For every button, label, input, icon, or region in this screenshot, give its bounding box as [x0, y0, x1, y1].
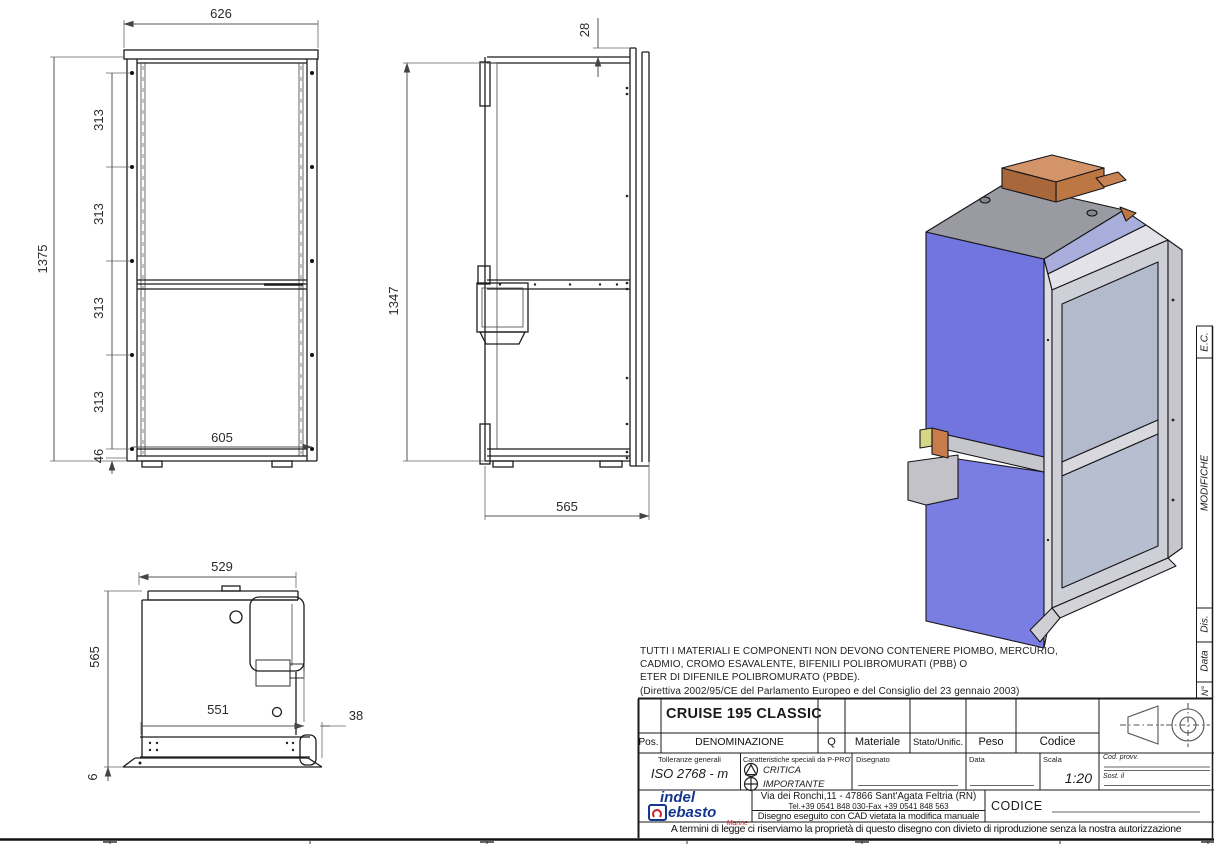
- dim-side-top: 28: [577, 23, 592, 37]
- dim-plan-depth: 565: [87, 646, 102, 668]
- col-denominazione: DENOMINAZIONE: [661, 736, 818, 748]
- cod-provv-label: Cod. provv.: [1103, 754, 1138, 761]
- sheet-bottom-edge: [0, 840, 1214, 844]
- material-note-line2: CADMIO, CROMO ESAVALENTE, BIFENILI POLIB…: [640, 658, 1058, 671]
- projection-symbol: [1120, 703, 1210, 747]
- dim-front-seg3: 313: [91, 297, 106, 319]
- dim-plan-width-top: 529: [211, 559, 233, 574]
- scala-value: 1:20: [1040, 770, 1092, 786]
- col-codice: Codice: [1016, 736, 1099, 748]
- cad-note: Disegno eseguito con CAD vietata la modi…: [752, 811, 985, 822]
- dim-front-width-inner: 605: [211, 430, 233, 445]
- tolleranze-value: ISO 2768 - m: [639, 766, 740, 781]
- caratteristiche-label: Caratteristiche speciali da P-PROT: [743, 755, 851, 764]
- dim-front-seg2: 313: [91, 203, 106, 225]
- revision-strip-grid: [1197, 326, 1214, 699]
- logo-indel: indel: [660, 791, 748, 804]
- cad-drawing-sheet: 626 1375 313 313 313 313 46 605 28 1347: [0, 0, 1214, 844]
- material-note-line1: TUTTI I MATERIALI E COMPONENTI NON DEVON…: [640, 645, 1058, 658]
- revision-num-label: N°: [1200, 686, 1210, 696]
- dim-plan-flange: 6: [85, 773, 100, 780]
- material-note-line3: ETER DI DIFENILE POLIBROMURATO (PBDE).: [640, 671, 1058, 684]
- material-note-line4: (Direttiva 2002/95/CE del Parlamento Eur…: [640, 685, 1058, 698]
- revision-ec-label: E.C.: [1200, 332, 1211, 351]
- critica-icon: [745, 764, 758, 777]
- dim-side-height: 1347: [386, 287, 401, 316]
- tolleranze-label: Tolleranze generali: [639, 755, 740, 764]
- side-view-dimensions: [403, 18, 649, 520]
- col-peso: Peso: [966, 736, 1016, 748]
- dim-front-width-top: 626: [210, 6, 232, 21]
- side-view: [477, 48, 649, 467]
- plan-view: [123, 586, 322, 767]
- front-view: [124, 50, 318, 467]
- col-q: Q: [818, 736, 845, 748]
- sost-label: Sost. il: [1103, 773, 1124, 780]
- col-pos: Pos.: [636, 737, 661, 748]
- logo-webasto: ebasto: [648, 804, 748, 821]
- col-stato-unific: Stato/Unific.: [910, 737, 966, 747]
- critica-label: CRITICA: [763, 765, 801, 776]
- material-note: TUTTI I MATERIALI E COMPONENTI NON DEVON…: [640, 645, 1058, 698]
- dim-front-seg4: 313: [91, 391, 106, 413]
- revision-dis-label: Dis.: [1200, 615, 1211, 632]
- codice-value-label: CODICE: [991, 799, 1043, 813]
- indel-webasto-logo: indel ebasto Marine: [648, 791, 748, 827]
- revision-data-label: Data: [1200, 650, 1211, 671]
- dim-front-bottom: 46: [91, 449, 106, 463]
- webasto-w-icon: [648, 804, 667, 821]
- revision-modifiche-label: MODIFICHE: [1200, 455, 1211, 511]
- dim-plan-width-inner: 551: [207, 702, 229, 717]
- importante-icon: [745, 778, 758, 791]
- dim-front-total-height: 1375: [35, 245, 50, 274]
- dim-plan-right: 38: [349, 708, 363, 723]
- importante-label: IMPORTANTE: [763, 779, 824, 790]
- drawing-linework: 626 1375 313 313 313 313 46 605 28 1347: [0, 0, 1214, 844]
- address-line1: Via dei Ronchi,11 - 47866 Sant'Agata Fel…: [752, 791, 985, 802]
- render-3d: [908, 155, 1182, 648]
- scala-label: Scala: [1043, 755, 1062, 764]
- product-name: CRUISE 195 CLASSIC: [666, 706, 822, 722]
- legal-note: A termini di legge ci riserviamo la prop…: [638, 824, 1214, 835]
- col-materiale: Materiale: [845, 736, 910, 748]
- dim-side-depth: 565: [556, 499, 578, 514]
- dim-front-seg1: 313: [91, 109, 106, 131]
- disegnato-label: Disegnato: [856, 755, 890, 764]
- address-line2: Tel.+39 0541 848 030-Fax +39 0541 848 56…: [752, 802, 985, 811]
- data-label: Data: [969, 755, 985, 764]
- plan-view-dimensions: [104, 572, 346, 781]
